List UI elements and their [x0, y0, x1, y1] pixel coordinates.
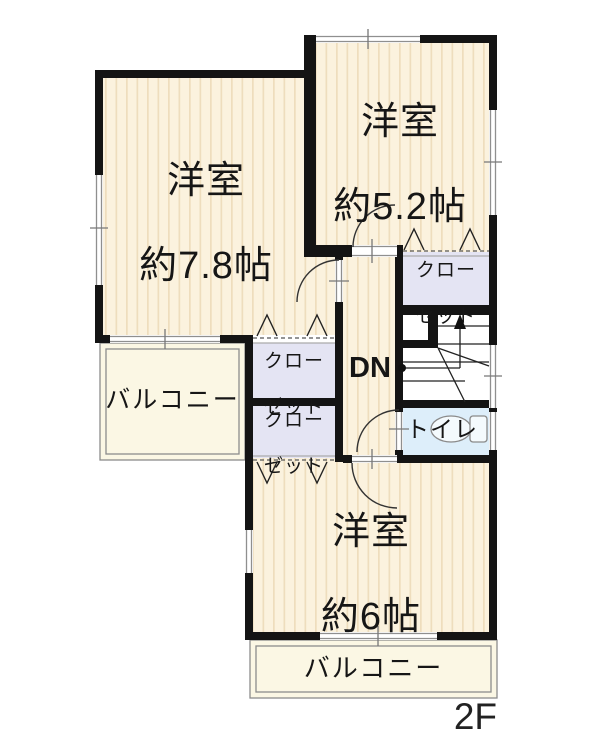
balcony-bottom-label: バルコニー — [250, 654, 497, 683]
floor-plan: 洋室 約7.8帖 洋室 約5.2帖 洋室 約6帖 クロー ゼット クロー ゼット… — [0, 0, 605, 745]
closet-line2: ゼット — [416, 306, 476, 327]
floor-stairs — [403, 315, 489, 402]
room-5-2-label: 洋室 約5.2帖 — [306, 101, 494, 229]
balcony-left-label: バルコニー — [100, 386, 245, 414]
toilet-label: トイレ — [406, 417, 478, 443]
closet-line2: ゼット — [264, 456, 324, 477]
stairs-start-dot — [398, 364, 406, 372]
room-6-label: 洋室 約6帖 — [253, 511, 489, 639]
closet-line1: クロー — [264, 351, 324, 372]
window-room6-left — [245, 530, 253, 573]
room-7-8-size: 約7.8帖 — [139, 245, 273, 287]
room-7-8-name: 洋室 — [167, 160, 245, 202]
stairs-down-label: DN — [345, 352, 395, 384]
room-7-8-label: 洋室 約7.8帖 — [95, 160, 317, 288]
closet-top-right-label: クロー ゼット — [403, 259, 489, 328]
room-5-2-name: 洋室 — [361, 101, 439, 143]
room-5-2-size: 約5.2帖 — [333, 186, 467, 228]
closet-line1: クロー — [264, 410, 324, 431]
window-toilet-right — [489, 412, 497, 450]
room-6-name: 洋室 — [332, 511, 410, 553]
room-6-size: 約6帖 — [321, 596, 421, 638]
floor-number-label: 2F — [437, 696, 497, 737]
closet-line1: クロー — [416, 260, 476, 281]
closet-left-lower-label: クロー ゼット — [253, 409, 335, 478]
